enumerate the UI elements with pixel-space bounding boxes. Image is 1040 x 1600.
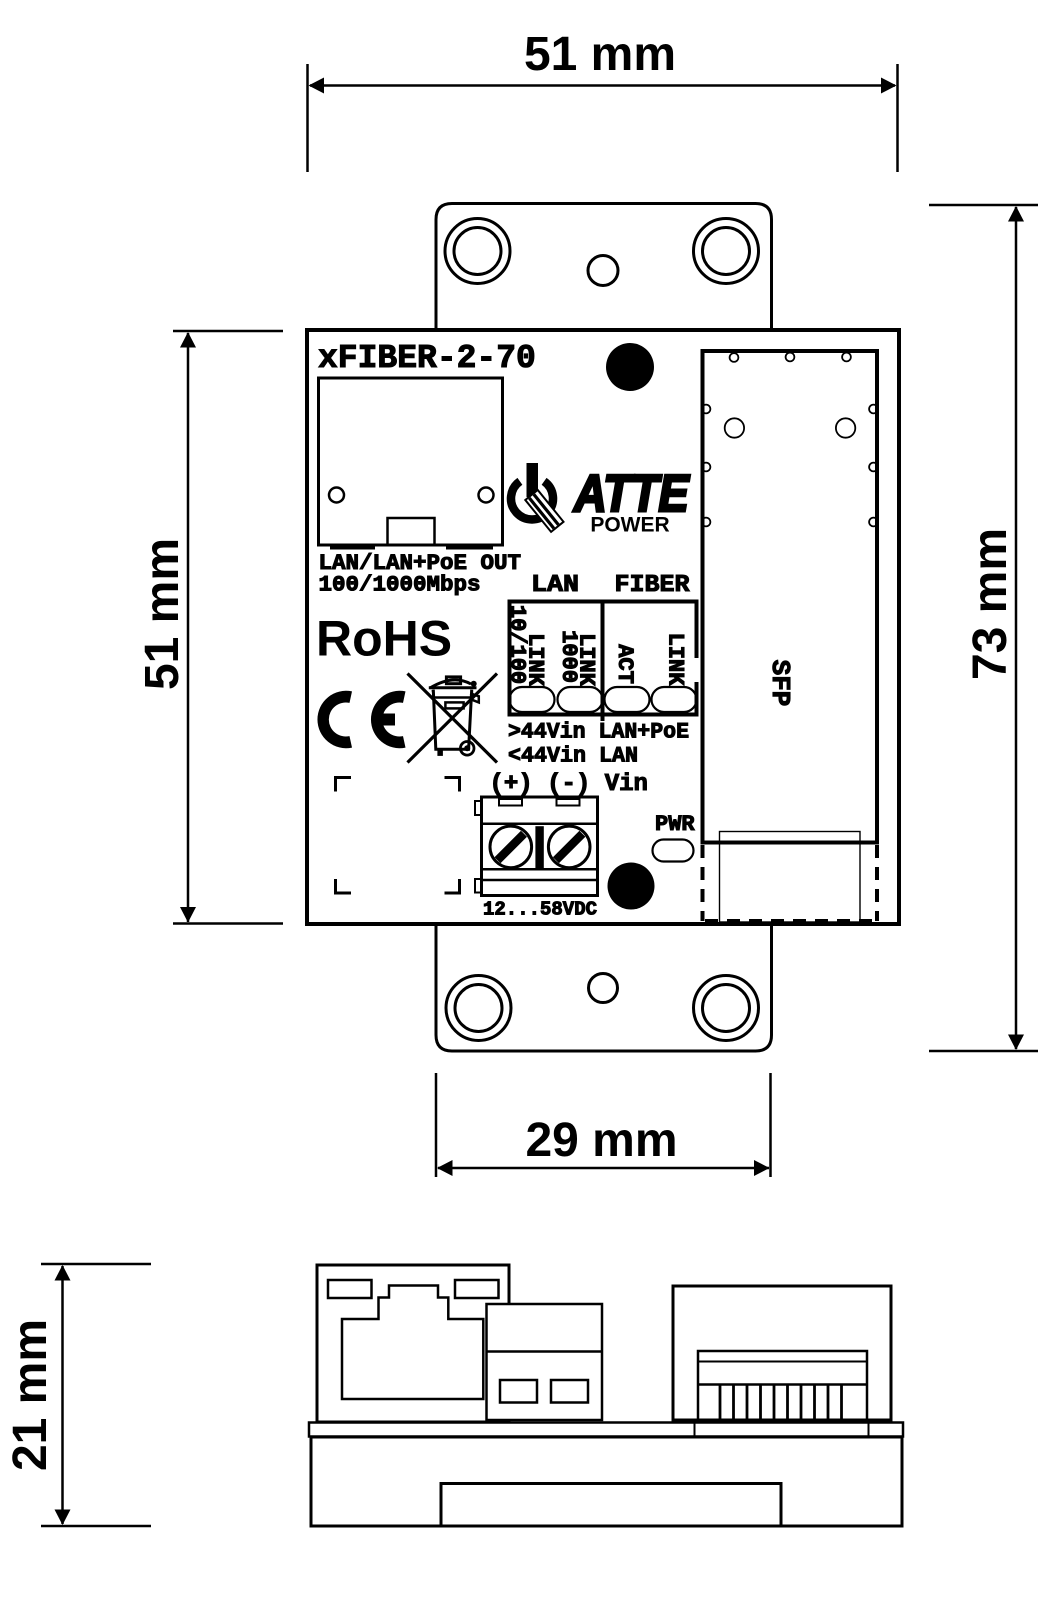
svg-text:LINK: LINK xyxy=(663,633,688,687)
svg-text:(+) (-) Vin: (+) (-) Vin xyxy=(490,771,648,798)
svg-text:29 mm: 29 mm xyxy=(525,1114,677,1167)
svg-text:51 mm: 51 mm xyxy=(136,538,189,690)
svg-text:>44Vin LAN+PoE: >44Vin LAN+PoE xyxy=(508,719,689,745)
svg-text:<44Vin LAN: <44Vin LAN xyxy=(508,743,638,769)
svg-text:73 mm: 73 mm xyxy=(964,528,1017,680)
svg-text:LAN: LAN xyxy=(531,572,579,599)
svg-text:ACT: ACT xyxy=(612,644,637,684)
svg-text:100/1000Mbps: 100/1000Mbps xyxy=(319,572,481,598)
svg-text:RoHS: RoHS xyxy=(316,611,452,667)
svg-text:FIBER: FIBER xyxy=(615,572,691,599)
svg-text:POWER: POWER xyxy=(590,514,669,537)
svg-text:1000: 1000 xyxy=(556,630,581,683)
svg-text:SFP: SFP xyxy=(765,660,795,707)
svg-text:21 mm: 21 mm xyxy=(4,1319,57,1471)
svg-text:10/100: 10/100 xyxy=(505,605,530,684)
svg-text:51 mm: 51 mm xyxy=(524,28,676,81)
svg-text:PWR: PWR xyxy=(655,812,695,837)
svg-text:xFIBER-2-70: xFIBER-2-70 xyxy=(318,340,536,377)
svg-text:12...58VDC: 12...58VDC xyxy=(483,899,597,921)
